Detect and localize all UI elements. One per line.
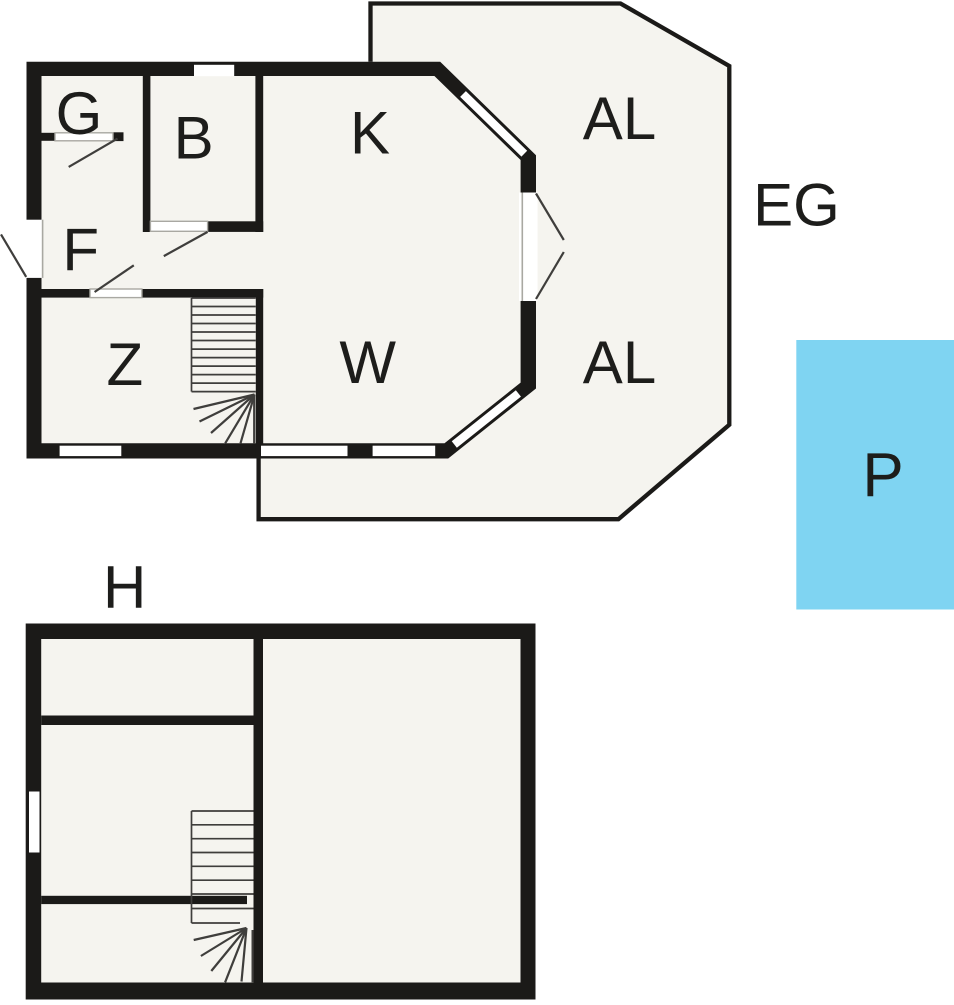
svg-text:H: H — [103, 554, 146, 621]
svg-text:G: G — [56, 80, 103, 147]
svg-text:F: F — [62, 217, 99, 284]
svg-text:EG: EG — [753, 172, 840, 239]
svg-text:AL: AL — [583, 85, 656, 152]
svg-text:AL: AL — [583, 329, 656, 396]
svg-text:W: W — [339, 329, 396, 396]
svg-text:P: P — [862, 441, 903, 510]
svg-text:K: K — [350, 100, 390, 167]
svg-text:Z: Z — [106, 331, 143, 398]
svg-text:B: B — [174, 105, 214, 172]
